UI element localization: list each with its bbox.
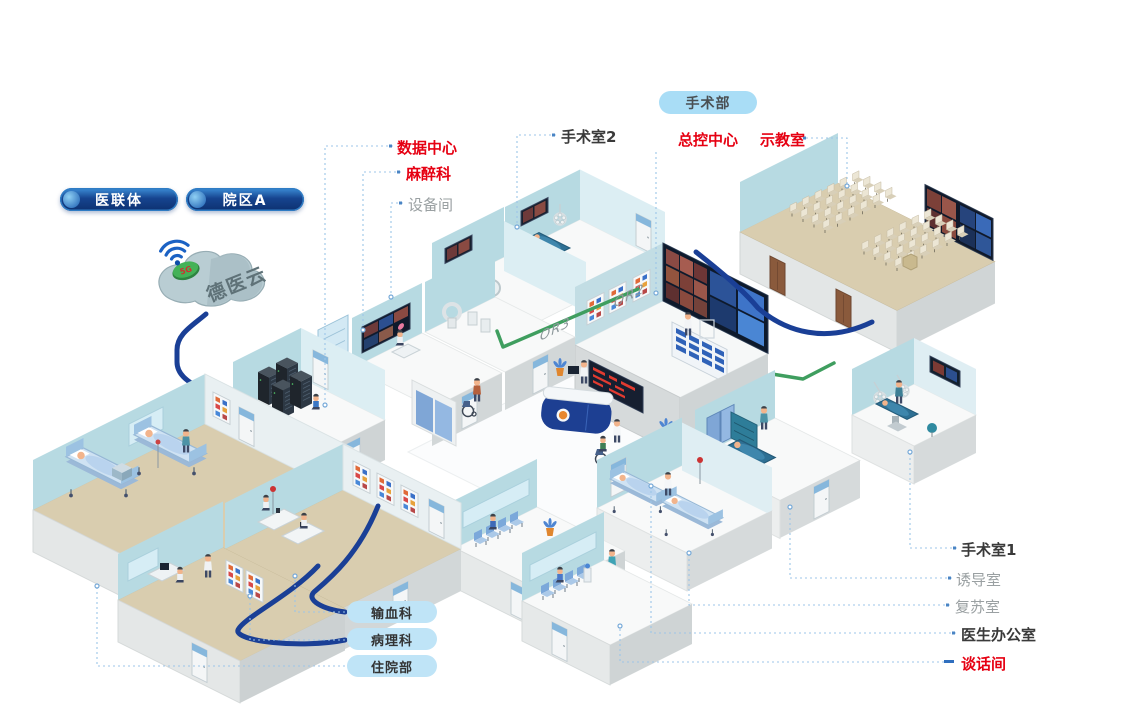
button-medical-alliance[interactable]: 医联体 bbox=[60, 188, 178, 211]
label-equipment-room: 设备间 bbox=[408, 196, 453, 214]
label-doctor-office: 医生办公室 bbox=[961, 626, 1036, 644]
podium bbox=[903, 254, 917, 270]
pill-pathology[interactable]: 病理科 bbox=[347, 628, 437, 650]
label-data-center: 数据中心 bbox=[397, 139, 457, 157]
cloud-platform: 德医云 5G bbox=[159, 239, 270, 307]
label-anesthesia: 麻醉科 bbox=[406, 165, 451, 183]
label-recovery-room: 复苏室 bbox=[955, 598, 1000, 616]
label-induction-room: 诱导室 bbox=[956, 571, 1001, 589]
label-master-control: 总控中心 bbox=[678, 131, 738, 149]
pill-blood-transfusion[interactable]: 输血科 bbox=[347, 601, 437, 623]
pill-surgery-department[interactable]: 手术部 bbox=[659, 91, 757, 114]
label-talk-room: 谈话间 bbox=[961, 655, 1006, 673]
reception-desk bbox=[540, 386, 614, 435]
label-operating-room-1: 手术室1 bbox=[961, 541, 1016, 559]
pill-inpatient[interactable]: 住院部 bbox=[347, 655, 437, 677]
button-campus-a[interactable]: 院区A bbox=[186, 188, 304, 211]
room-or1 bbox=[852, 338, 976, 484]
hospital-network-diagram: 德医云 5G OR2 OR3 医联体 院区A 手术部 数据中心 麻醉科 设备间 … bbox=[0, 0, 1129, 721]
label-operating-room-2: 手术室2 bbox=[561, 128, 616, 146]
label-demo-classroom: 示教室 bbox=[760, 131, 805, 149]
